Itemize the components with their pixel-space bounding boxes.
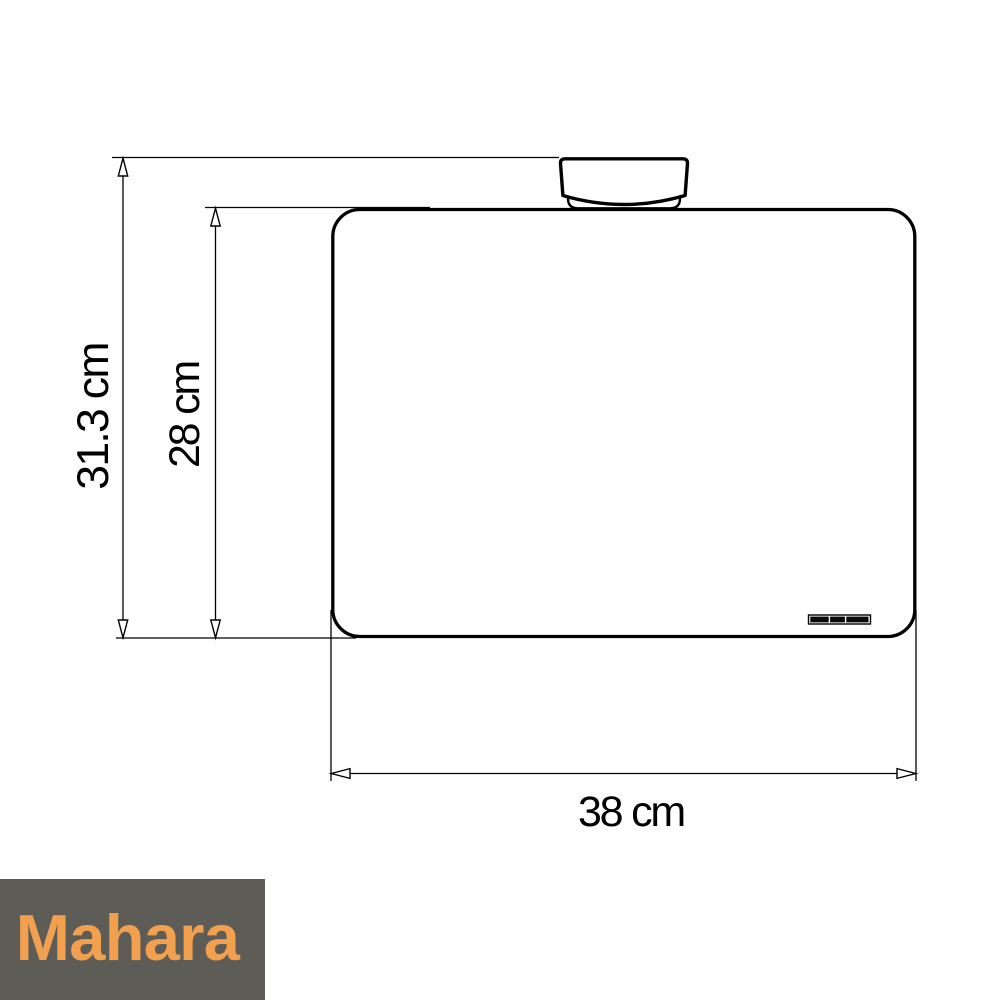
svg-text:31.3 cm: 31.3 cm (69, 343, 118, 489)
svg-text:Mahara: Mahara (16, 901, 241, 974)
svg-text:38 cm: 38 cm (578, 788, 684, 836)
svg-text:28 cm: 28 cm (161, 362, 209, 468)
